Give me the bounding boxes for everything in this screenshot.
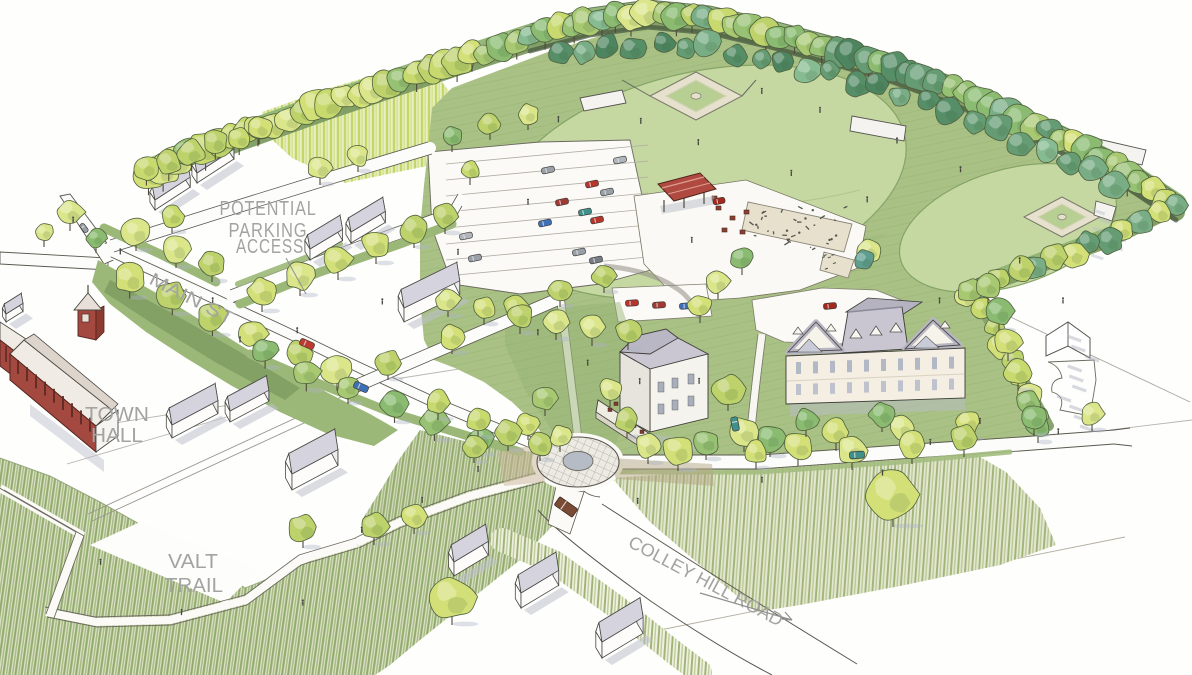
svg-text:POTENTIAL: POTENTIAL [220, 198, 317, 220]
svg-text:TOWN: TOWN [85, 404, 149, 426]
svg-text:ACCESS: ACCESS [236, 236, 304, 258]
svg-text:TRAIL: TRAIL [165, 575, 223, 597]
svg-text:HALL: HALL [91, 425, 143, 447]
svg-text:VALT: VALT [168, 551, 218, 573]
